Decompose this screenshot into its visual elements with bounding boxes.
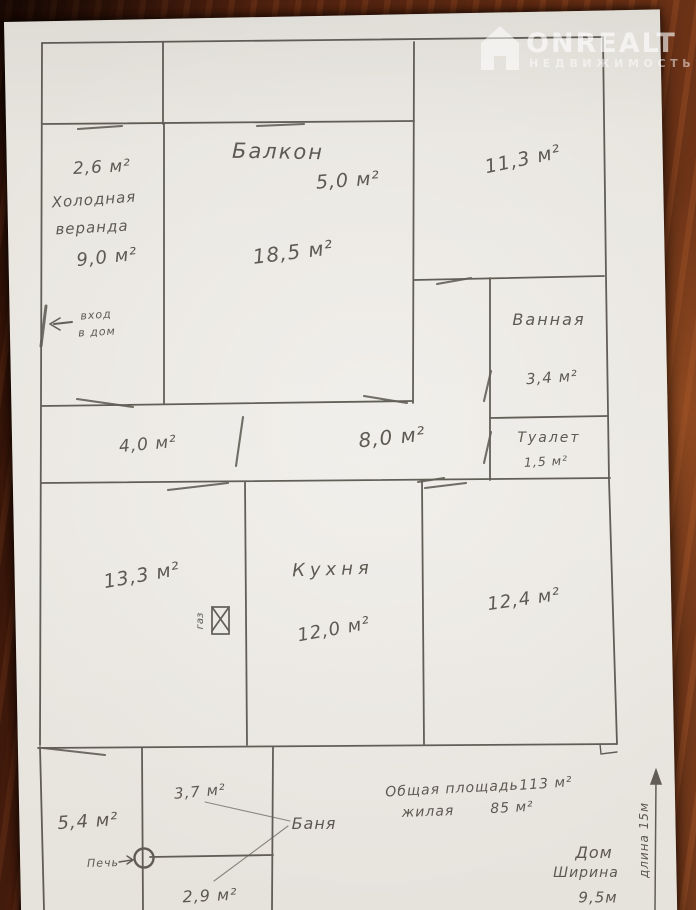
wall-house-bottom bbox=[38, 744, 617, 748]
wall-banya-left bbox=[142, 748, 143, 910]
entrance-label-line1: вход bbox=[80, 308, 112, 321]
entrance-arrow-icon bbox=[50, 318, 72, 330]
wall-outer-top bbox=[42, 37, 603, 43]
room-5-4-area-label: 5,4 м² bbox=[57, 811, 119, 833]
wall-outer-left bbox=[40, 43, 42, 745]
wall-banya-divider bbox=[150, 855, 273, 857]
wall-corner-notch bbox=[600, 744, 617, 754]
wall-balcony-bottom bbox=[42, 121, 414, 124]
balcony-area-label: 5,0 м² bbox=[315, 169, 380, 192]
wall-room133-kitchen bbox=[245, 482, 247, 745]
banya-pointer-lines bbox=[205, 802, 290, 881]
veranda-name-line2: веранда bbox=[55, 219, 129, 238]
stove-symbol bbox=[135, 849, 154, 868]
banya-name-label: Баня bbox=[292, 816, 337, 832]
length-dimension-arrow bbox=[651, 770, 661, 910]
house-length-label: длина 15м bbox=[638, 802, 650, 878]
house-width-label: Ширина bbox=[553, 866, 619, 880]
toilet-area-label: 1,5 м² bbox=[524, 455, 569, 470]
balcony-name-label: Балкон bbox=[232, 141, 324, 164]
wall-center-vertical bbox=[413, 42, 414, 403]
kitchen-name-label: Кухня bbox=[292, 560, 374, 581]
wall-room113-bottom bbox=[414, 276, 604, 280]
storage-area-label: 2,6 м² bbox=[73, 158, 132, 178]
bathroom-area-label: 3,4 м² bbox=[526, 369, 579, 388]
banya-top-area-label: 3,7 м² bbox=[173, 782, 226, 801]
total-area-value: 113 м² bbox=[519, 775, 573, 793]
wall-outer-right bbox=[603, 37, 617, 744]
floor-plan-walls bbox=[0, 0, 696, 910]
toilet-name-label: Туалет bbox=[517, 431, 580, 445]
banya-bottom-area-label: 2,9 м² bbox=[182, 887, 238, 906]
gas-label: газ bbox=[196, 613, 206, 630]
floor-plan: 2,6 м² Балкон 5,0 м² 11,3 м² Холодная ве… bbox=[0, 0, 696, 910]
bathroom-name-label: Ванная bbox=[512, 312, 585, 328]
wall-hall-bottom bbox=[42, 478, 610, 483]
living-area-label: жилая bbox=[401, 804, 454, 820]
wall-bath-toilet bbox=[490, 416, 608, 418]
photo-of-floor-plan: 2,6 м² Балкон 5,0 м² 11,3 м² Холодная ве… bbox=[0, 0, 696, 910]
entrance-label-line2: в дом bbox=[78, 326, 116, 339]
gas-meter-symbol bbox=[212, 607, 229, 634]
house-width-value: 9,5м bbox=[578, 891, 617, 906]
house-label: Дом bbox=[575, 845, 612, 861]
hall-left-area-label: 4,0 м² bbox=[118, 434, 177, 456]
wall-kitchen-room124 bbox=[422, 481, 424, 744]
wall-banya-right bbox=[272, 747, 273, 910]
hall-right-area-label: 8,0 м² bbox=[357, 424, 426, 451]
stove-arrow-icon bbox=[119, 856, 133, 864]
stove-label: Печь bbox=[87, 857, 119, 869]
living-area-value: 85 м² bbox=[490, 800, 534, 816]
wall-outer-left-lower bbox=[40, 747, 44, 910]
